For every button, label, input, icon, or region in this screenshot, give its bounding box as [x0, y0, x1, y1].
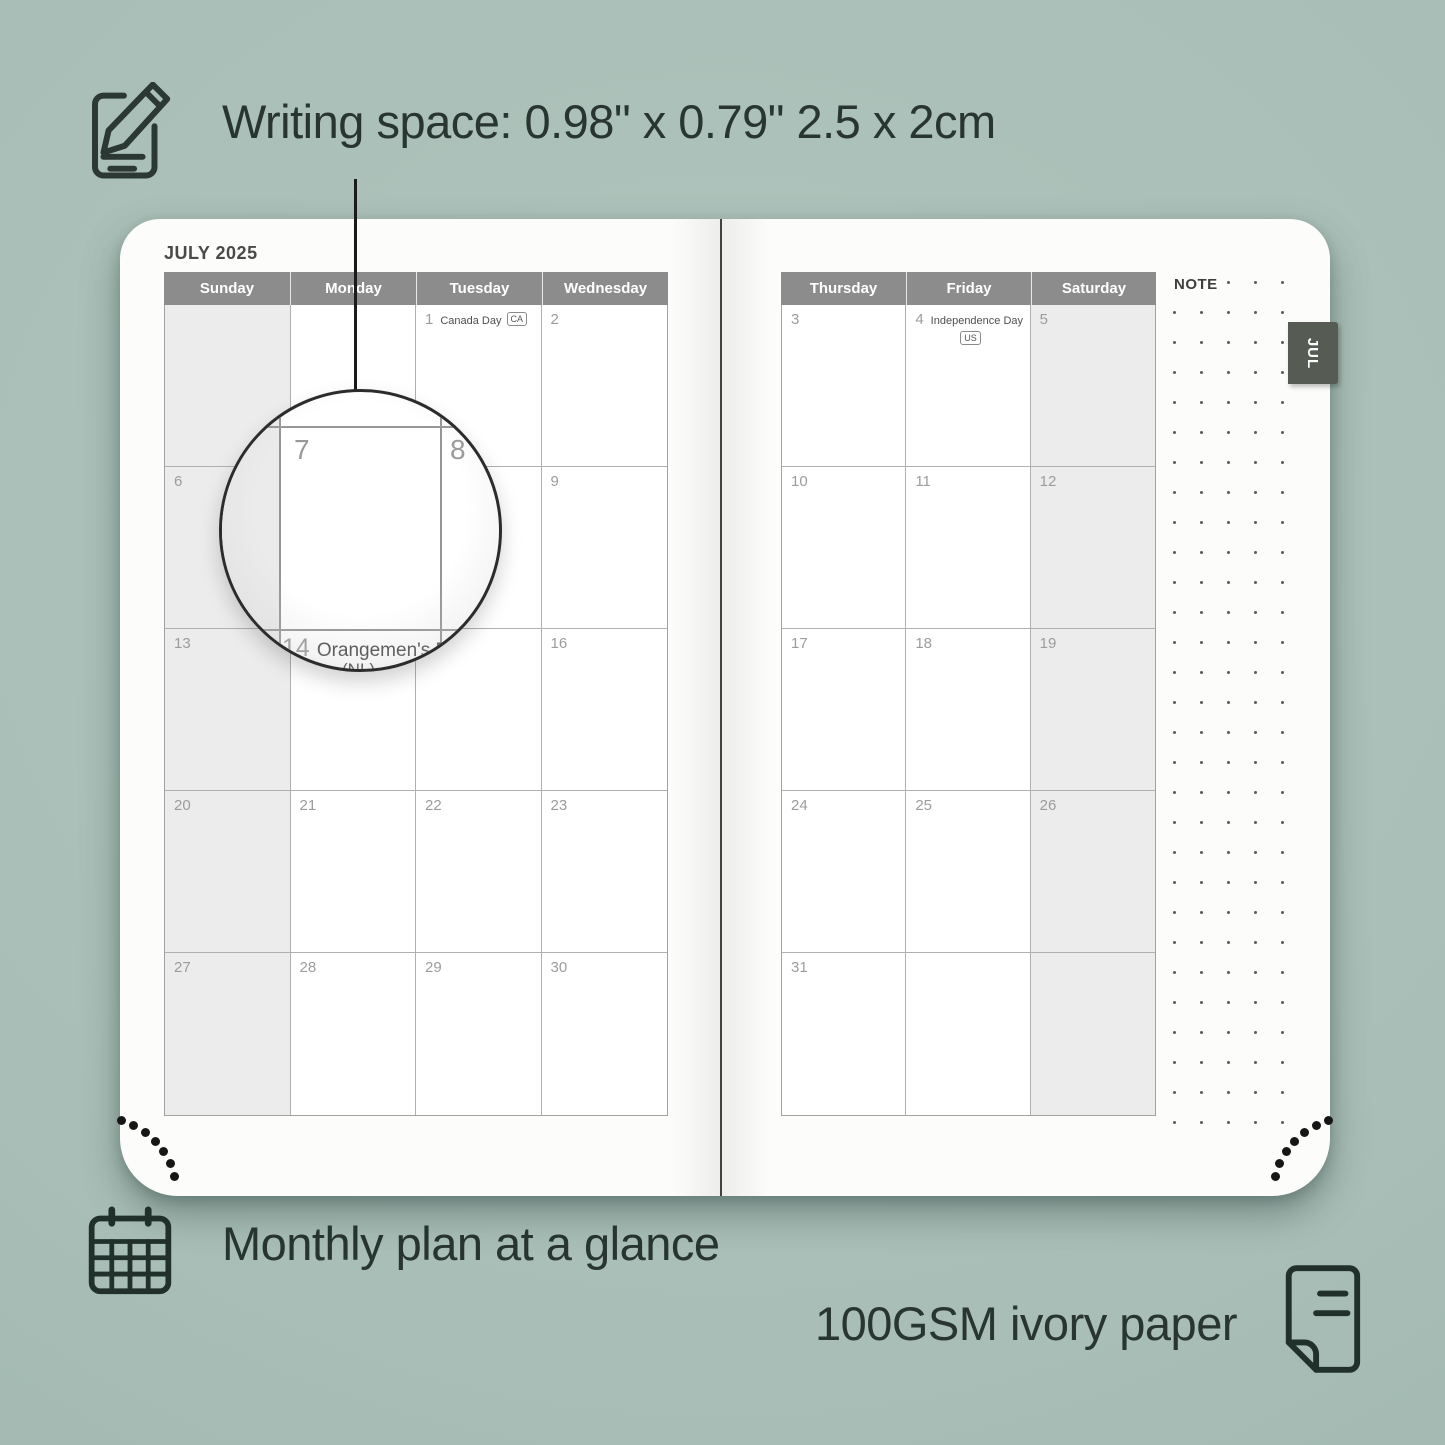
calendar-cell-22: 22	[416, 791, 542, 953]
note-dot	[1254, 341, 1257, 344]
note-dot	[1281, 881, 1284, 884]
day-number: 13	[174, 635, 191, 652]
note-dot	[1200, 431, 1203, 434]
note-dot	[1173, 371, 1176, 374]
note-dot	[1200, 941, 1203, 944]
note-dot	[1281, 911, 1284, 914]
note-dot	[1254, 431, 1257, 434]
note-dot	[1227, 521, 1230, 524]
calendar-cell-24: 24	[782, 791, 906, 953]
note-dot	[1173, 1061, 1176, 1064]
day-header-thursday: Thursday	[781, 272, 906, 305]
corner-arc-dot	[129, 1121, 138, 1130]
note-dot	[1281, 851, 1284, 854]
note-dot	[1200, 881, 1203, 884]
magnified-grid-line	[440, 392, 442, 669]
note-dot	[1281, 281, 1284, 284]
day-number: 1	[425, 311, 433, 328]
calendar-cell-3: 3	[782, 305, 906, 467]
magnified-weekend-shade	[222, 392, 279, 669]
calendar-cell-12: 12	[1031, 467, 1155, 629]
note-dot	[1173, 821, 1176, 824]
calendar-cell-20: 20	[165, 791, 291, 953]
note-dot	[1227, 1001, 1230, 1004]
note-dot	[1200, 731, 1203, 734]
note-dot	[1200, 551, 1203, 554]
note-dot	[1254, 1091, 1257, 1094]
note-dot	[1281, 581, 1284, 584]
corner-arc-dot	[1290, 1137, 1299, 1146]
magnified-day-7: 7	[294, 434, 310, 466]
day-number: 30	[551, 959, 568, 976]
calendar-cell-21: 21	[291, 791, 417, 953]
note-dot	[1254, 671, 1257, 674]
note-dot	[1173, 641, 1176, 644]
calendar-cell-25: 25	[906, 791, 1030, 953]
note-dot	[1227, 401, 1230, 404]
calendar-cell-16: 16	[542, 629, 668, 791]
note-dot	[1227, 881, 1230, 884]
note-dot	[1254, 641, 1257, 644]
day-number: 16	[551, 635, 568, 652]
note-dot	[1173, 311, 1176, 314]
day-number: 4	[915, 311, 923, 328]
note-dot	[1200, 491, 1203, 494]
note-dot	[1227, 551, 1230, 554]
day-number: 23	[551, 797, 568, 814]
corner-arc-dot	[1312, 1121, 1321, 1130]
day-header-sunday: Sunday	[164, 272, 290, 305]
note-dot	[1281, 731, 1284, 734]
note-dot	[1254, 581, 1257, 584]
note-dot	[1281, 1091, 1284, 1094]
note-dot	[1227, 791, 1230, 794]
note-dot	[1200, 1121, 1203, 1124]
day-number: 25	[915, 797, 932, 814]
note-dot	[1254, 491, 1257, 494]
calendar-icon	[84, 1206, 176, 1298]
note-dot	[1254, 551, 1257, 554]
spine-line	[720, 219, 722, 1196]
calendar-cell-9: 9	[542, 467, 668, 629]
day-number: 5	[1040, 311, 1048, 328]
day-number: 22	[425, 797, 442, 814]
note-dot	[1227, 671, 1230, 674]
note-dot	[1173, 851, 1176, 854]
note-dot	[1173, 611, 1176, 614]
writing-space-label: Writing space: 0.98" x 0.79" 2.5 x 2cm	[222, 94, 996, 149]
note-dot	[1254, 281, 1257, 284]
note-dot	[1254, 821, 1257, 824]
note-dot	[1281, 611, 1284, 614]
note-dot	[1254, 611, 1257, 614]
note-dot	[1227, 431, 1230, 434]
day-number: 31	[791, 959, 808, 976]
day-number: 21	[300, 797, 317, 814]
note-dot	[1254, 701, 1257, 704]
corner-arc-dot	[117, 1116, 126, 1125]
note-dot	[1254, 401, 1257, 404]
pencil-note-icon	[86, 82, 172, 184]
note-dot	[1281, 341, 1284, 344]
note-dot	[1254, 941, 1257, 944]
note-dot	[1254, 1031, 1257, 1034]
note-dot	[1173, 731, 1176, 734]
note-dot	[1173, 1001, 1176, 1004]
note-dot	[1200, 761, 1203, 764]
day-number: 6	[174, 473, 182, 490]
note-dot	[1254, 311, 1257, 314]
month-tab: JUL	[1288, 322, 1338, 384]
note-dot	[1200, 1061, 1203, 1064]
note-dot	[1254, 371, 1257, 374]
magnifier-circle: 7 8 14 Orangemen's Day (NL)	[219, 389, 502, 672]
magnified-grid-line	[222, 426, 499, 428]
note-dot	[1227, 1091, 1230, 1094]
calendar-right-page: ThursdayFridaySaturday34Independence Day…	[781, 272, 1156, 1116]
day-number: 17	[791, 635, 808, 652]
note-dot	[1254, 1121, 1257, 1124]
note-dot	[1281, 461, 1284, 464]
corner-arc-dot	[1275, 1159, 1284, 1168]
corner-arc-dot	[151, 1137, 160, 1146]
note-dot	[1254, 851, 1257, 854]
day-number: 11	[915, 473, 931, 490]
note-dot	[1281, 371, 1284, 374]
paper-label: 100GSM ivory paper	[815, 1296, 1237, 1351]
note-dot	[1281, 311, 1284, 314]
note-dot	[1281, 491, 1284, 494]
pencil-eraser-line	[146, 92, 160, 106]
note-dot	[1227, 1061, 1230, 1064]
magnified-holiday-caption: 14 Orangemen's Day	[282, 634, 442, 663]
note-dot	[1173, 521, 1176, 524]
note-dot	[1227, 581, 1230, 584]
day-number: 12	[1040, 473, 1057, 490]
note-dot	[1200, 851, 1203, 854]
calendar-cell-23: 23	[542, 791, 668, 953]
note-dot	[1281, 401, 1284, 404]
note-dot	[1200, 911, 1203, 914]
day-number: 27	[174, 959, 191, 976]
note-dot	[1254, 521, 1257, 524]
magnified-holiday-text-2: (NL)	[342, 660, 375, 672]
planner-spread: JULY 2025 SundayMondayTuesdayWednesday1C…	[120, 219, 1330, 1196]
note-dot	[1254, 761, 1257, 764]
calendar-cell	[1031, 953, 1155, 1115]
monthly-plan-label: Monthly plan at a glance	[222, 1216, 720, 1271]
note-dot	[1200, 1031, 1203, 1034]
note-dot	[1200, 701, 1203, 704]
magnified-grid-line	[279, 392, 281, 669]
day-header-row: ThursdayFridaySaturday	[781, 272, 1156, 305]
country-badge: CA	[507, 312, 528, 326]
holiday-label: Independence Day	[931, 315, 1023, 327]
note-dot	[1281, 821, 1284, 824]
note-dot	[1200, 1091, 1203, 1094]
note-dot	[1281, 431, 1284, 434]
note-dot	[1281, 1061, 1284, 1064]
magnified-holiday-text: Orangemen's Day	[317, 640, 442, 662]
note-dot	[1281, 551, 1284, 554]
day-header-tuesday: Tuesday	[416, 272, 542, 305]
corner-arc-dot	[1324, 1116, 1333, 1125]
note-dot	[1200, 791, 1203, 794]
note-dot	[1200, 401, 1203, 404]
corner-arc-dot	[159, 1147, 168, 1156]
note-dot	[1200, 611, 1203, 614]
note-dot	[1173, 1091, 1176, 1094]
note-dot	[1281, 791, 1284, 794]
calendar-cell-18: 18	[906, 629, 1030, 791]
corner-arc-dot	[1271, 1172, 1280, 1181]
calendar-cell-29: 29	[416, 953, 542, 1115]
note-dot	[1173, 911, 1176, 914]
note-dot	[1281, 521, 1284, 524]
note-dot	[1200, 971, 1203, 974]
note-dot	[1227, 461, 1230, 464]
corner-arc-dot	[170, 1172, 179, 1181]
day-header-wednesday: Wednesday	[542, 272, 668, 305]
note-dot	[1254, 1061, 1257, 1064]
note-dot	[1173, 761, 1176, 764]
note-dot	[1173, 701, 1176, 704]
note-dot	[1281, 971, 1284, 974]
day-number: 29	[425, 959, 442, 976]
note-dot	[1200, 1001, 1203, 1004]
day-header-monday: Monday	[290, 272, 416, 305]
note-dot	[1281, 1121, 1284, 1124]
note-dot	[1254, 791, 1257, 794]
note-dot	[1173, 1031, 1176, 1034]
note-dot	[1281, 671, 1284, 674]
month-title: JULY 2025	[164, 243, 258, 264]
note-dot	[1281, 761, 1284, 764]
magnified-day-14: 14	[282, 634, 310, 663]
calendar-cell-11: 11	[906, 467, 1030, 629]
spine-shadow-left	[672, 219, 720, 1196]
note-dot	[1227, 341, 1230, 344]
note-dot	[1254, 461, 1257, 464]
calendar-cell-30: 30	[542, 953, 668, 1115]
note-dot	[1254, 881, 1257, 884]
calendar-cell-17: 17	[782, 629, 906, 791]
note-dot	[1227, 761, 1230, 764]
calendar-cell-4: 4Independence DayUS	[906, 305, 1030, 467]
note-dot	[1227, 611, 1230, 614]
note-dot	[1227, 701, 1230, 704]
note-dot	[1254, 911, 1257, 914]
country-badge: US	[960, 331, 981, 345]
calendar-cell-26: 26	[1031, 791, 1155, 953]
note-dot	[1227, 641, 1230, 644]
note-dot	[1227, 821, 1230, 824]
corner-arc-dot	[1282, 1147, 1291, 1156]
month-tab-label: JUL	[1305, 337, 1322, 368]
note-dot	[1200, 461, 1203, 464]
calendar-cell-27: 27	[165, 953, 291, 1115]
note-dot	[1227, 311, 1230, 314]
note-dot	[1227, 911, 1230, 914]
day-number: 9	[551, 473, 559, 490]
day-number: 10	[791, 473, 808, 490]
note-outline	[95, 96, 155, 176]
calendar-cell-2: 2	[542, 305, 668, 467]
note-dot	[1200, 311, 1203, 314]
note-dot	[1173, 401, 1176, 404]
note-dot	[1254, 971, 1257, 974]
note-dot	[1254, 731, 1257, 734]
day-number: 3	[791, 311, 799, 328]
calendar-cell-28: 28	[291, 953, 417, 1115]
day-number: 2	[551, 311, 559, 328]
note-dot	[1173, 431, 1176, 434]
calendar-cell-10: 10	[782, 467, 906, 629]
note-dot	[1173, 971, 1176, 974]
note-dot	[1227, 851, 1230, 854]
calendar-cell-5: 5	[1031, 305, 1155, 467]
note-dot	[1200, 341, 1203, 344]
paper-sheet-icon	[1277, 1262, 1365, 1376]
note-dot	[1281, 1031, 1284, 1034]
note-dot	[1200, 671, 1203, 674]
note-dot	[1227, 281, 1230, 284]
note-dot	[1173, 461, 1176, 464]
note-dot	[1173, 1121, 1176, 1124]
note-dot	[1173, 941, 1176, 944]
note-dot	[1281, 641, 1284, 644]
day-header-row: SundayMondayTuesdayWednesday	[164, 272, 668, 305]
note-dot	[1281, 701, 1284, 704]
note-dot	[1200, 581, 1203, 584]
day-number: 18	[915, 635, 932, 652]
note-dot	[1173, 341, 1176, 344]
note-dot	[1281, 941, 1284, 944]
note-dot	[1173, 881, 1176, 884]
corner-arc-dot	[166, 1159, 175, 1168]
calendar-grid: 34Independence DayUS51011121718192425263…	[781, 305, 1156, 1116]
calendar-cell-19: 19	[1031, 629, 1155, 791]
note-dot	[1254, 1001, 1257, 1004]
calendar-cell-31: 31	[782, 953, 906, 1115]
note-dot	[1173, 581, 1176, 584]
magnified-day-8: 8	[450, 434, 466, 466]
note-dot	[1173, 491, 1176, 494]
note-dot	[1227, 1031, 1230, 1034]
day-number: 26	[1040, 797, 1057, 814]
day-number: 24	[791, 797, 808, 814]
day-number: 20	[174, 797, 191, 814]
note-dot	[1227, 731, 1230, 734]
note-dot	[1227, 941, 1230, 944]
country-badge-row: US	[915, 330, 1025, 348]
calendar-cell	[906, 953, 1030, 1115]
day-number: 28	[300, 959, 317, 976]
note-dot	[1200, 821, 1203, 824]
note-dot	[1200, 641, 1203, 644]
corner-arc-dot	[141, 1128, 150, 1137]
day-number: 19	[1040, 635, 1057, 652]
note-dot	[1227, 371, 1230, 374]
magnified-grid-line	[222, 629, 499, 631]
note-dot	[1227, 491, 1230, 494]
holiday-label: Canada Day	[440, 315, 501, 327]
corner-arc-dot	[1300, 1128, 1309, 1137]
note-label: NOTE	[1174, 276, 1218, 293]
spine-shadow-right	[722, 219, 770, 1196]
note-dot	[1173, 551, 1176, 554]
day-header-friday: Friday	[906, 272, 1031, 305]
note-dot	[1227, 1121, 1230, 1124]
note-dot	[1200, 371, 1203, 374]
day-header-saturday: Saturday	[1031, 272, 1156, 305]
note-dot	[1173, 791, 1176, 794]
magnifier-leader-line	[354, 179, 357, 391]
note-dot	[1227, 971, 1230, 974]
note-dot	[1281, 1001, 1284, 1004]
note-dot	[1173, 671, 1176, 674]
note-dot	[1200, 521, 1203, 524]
